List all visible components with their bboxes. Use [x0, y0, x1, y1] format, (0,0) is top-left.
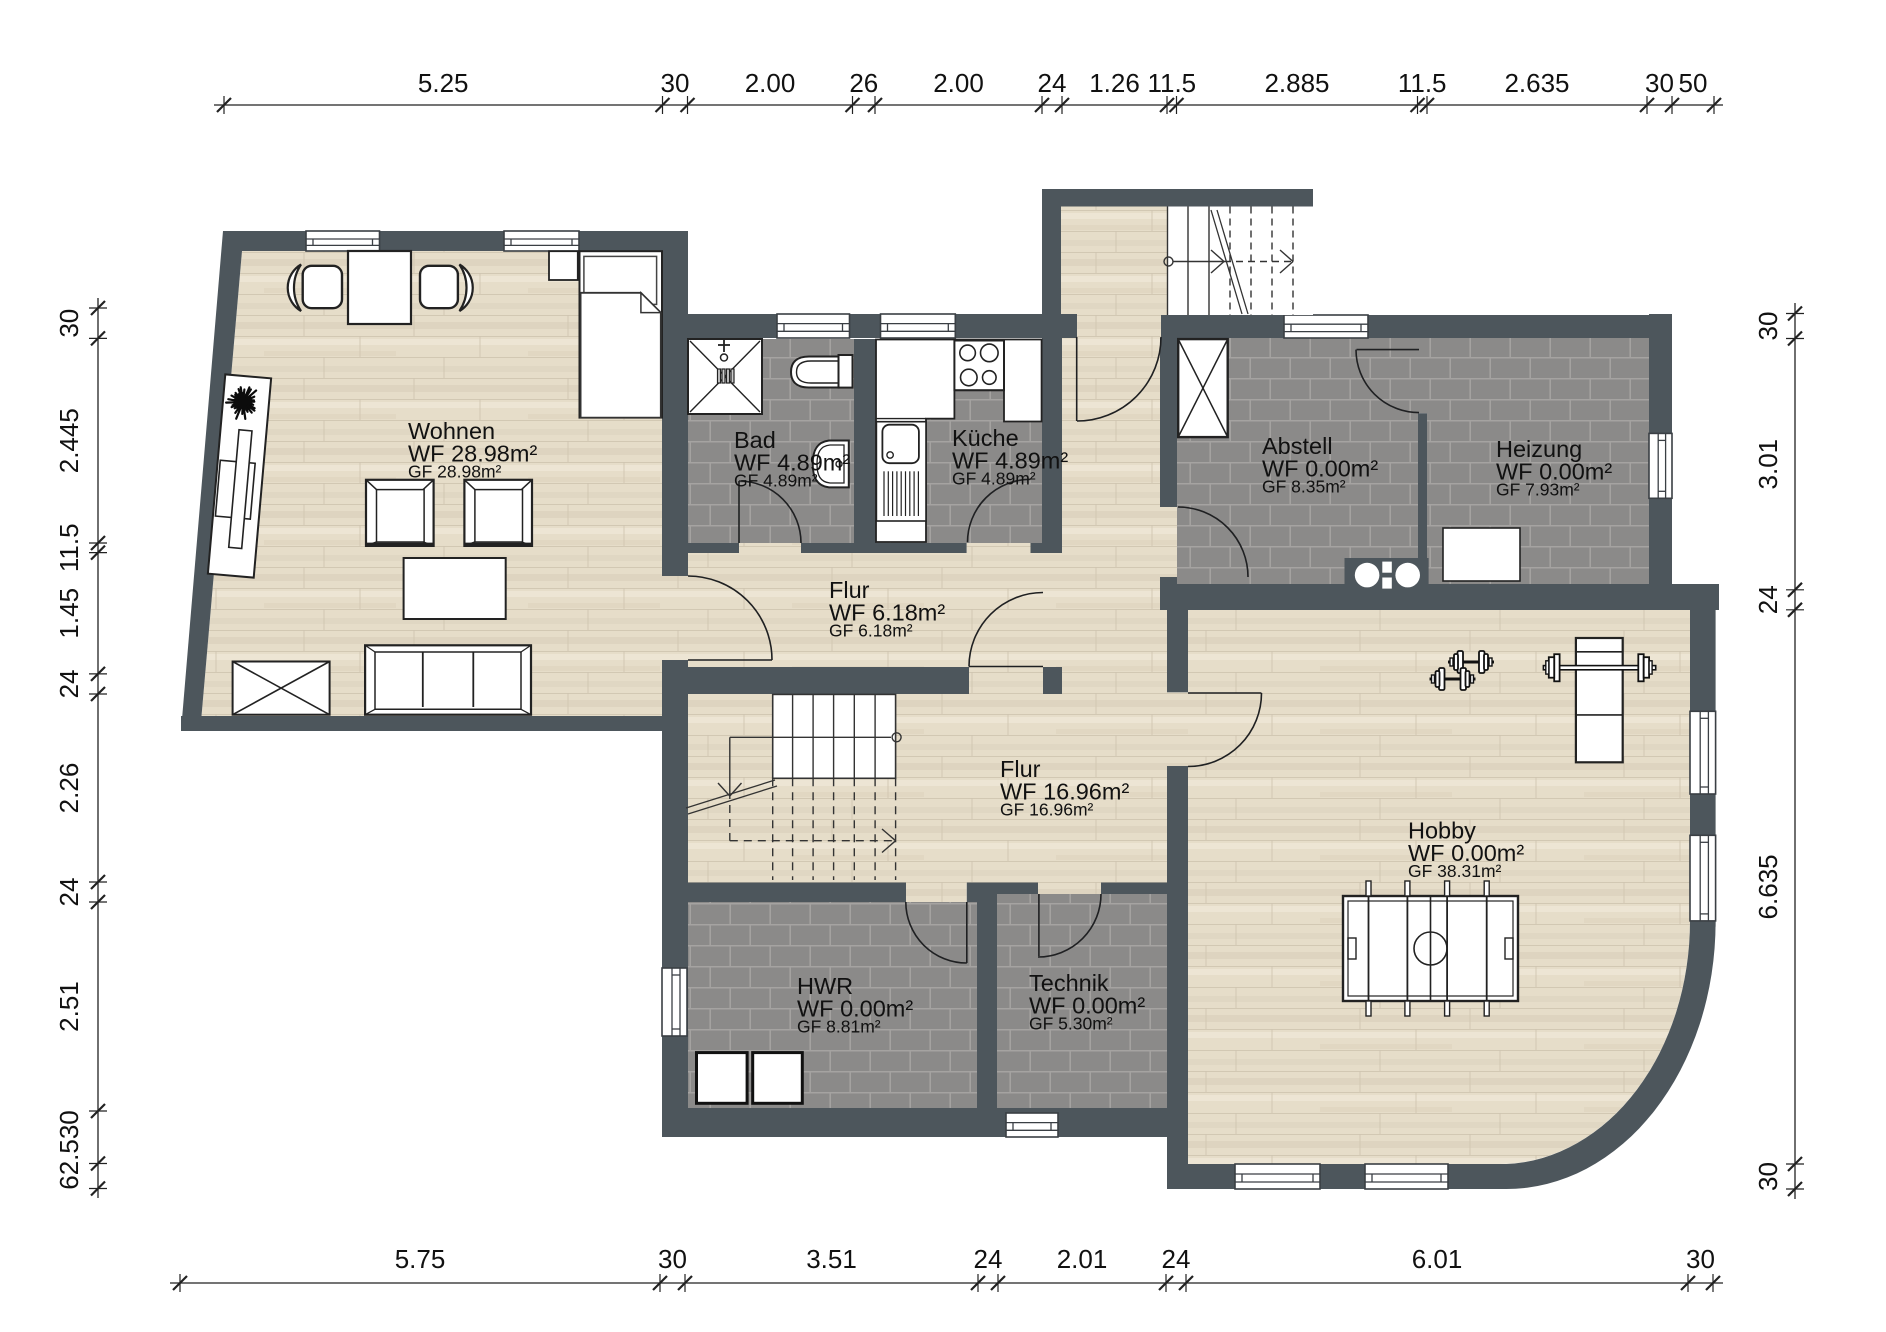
svg-text:30: 30 [1645, 68, 1674, 98]
svg-text:3.01: 3.01 [1753, 439, 1783, 490]
svg-text:GF 38.31m²: GF 38.31m² [1408, 861, 1502, 881]
svg-text:62.530: 62.530 [54, 1110, 84, 1190]
svg-text:6.01: 6.01 [1412, 1244, 1463, 1274]
svg-text:24: 24 [54, 878, 84, 907]
svg-text:GF 4.89m²: GF 4.89m² [952, 469, 1036, 489]
svg-text:GF 4.89m²: GF 4.89m² [734, 471, 818, 491]
svg-text:24: 24 [1753, 585, 1783, 614]
svg-text:24: 24 [974, 1244, 1003, 1274]
svg-text:2.00: 2.00 [745, 68, 796, 98]
svg-text:26: 26 [849, 68, 878, 98]
svg-text:2.885: 2.885 [1264, 68, 1329, 98]
svg-text:GF 5.30m²: GF 5.30m² [1029, 1014, 1113, 1034]
svg-text:24: 24 [1038, 68, 1067, 98]
svg-text:5.25: 5.25 [418, 68, 469, 98]
svg-text:30: 30 [54, 309, 84, 338]
svg-text:6.635: 6.635 [1753, 854, 1783, 919]
svg-text:30: 30 [658, 1244, 687, 1274]
svg-text:2.00: 2.00 [933, 68, 984, 98]
svg-text:30: 30 [1686, 1244, 1715, 1274]
svg-text:GF 16.96m²: GF 16.96m² [1000, 800, 1094, 820]
svg-text:GF 7.93m²: GF 7.93m² [1496, 480, 1580, 500]
svg-text:2.01: 2.01 [1057, 1244, 1108, 1274]
svg-text:24: 24 [1162, 1244, 1191, 1274]
svg-text:30: 30 [1753, 1162, 1783, 1191]
svg-text:GF 8.81m²: GF 8.81m² [797, 1017, 881, 1037]
svg-text:2.51: 2.51 [54, 981, 84, 1032]
svg-text:2.635: 2.635 [1504, 68, 1569, 98]
svg-text:1.45: 1.45 [54, 588, 84, 639]
svg-text:2.26: 2.26 [54, 763, 84, 814]
svg-text:5.75: 5.75 [395, 1244, 446, 1274]
svg-text:GF 6.18m²: GF 6.18m² [829, 621, 913, 641]
svg-text:30: 30 [1753, 312, 1783, 341]
svg-text:2.445: 2.445 [54, 408, 84, 473]
svg-text:30: 30 [661, 68, 690, 98]
svg-text:GF 8.35m²: GF 8.35m² [1262, 477, 1346, 497]
svg-text:11.5: 11.5 [1398, 68, 1447, 98]
svg-text:50: 50 [1679, 68, 1708, 98]
svg-text:11.5: 11.5 [1147, 68, 1196, 98]
svg-text:1.26: 1.26 [1089, 68, 1140, 98]
svg-text:3.51: 3.51 [806, 1244, 857, 1274]
svg-text:24: 24 [54, 669, 84, 698]
svg-text:11.5: 11.5 [54, 523, 84, 572]
svg-text:GF 28.98m²: GF 28.98m² [408, 462, 502, 482]
